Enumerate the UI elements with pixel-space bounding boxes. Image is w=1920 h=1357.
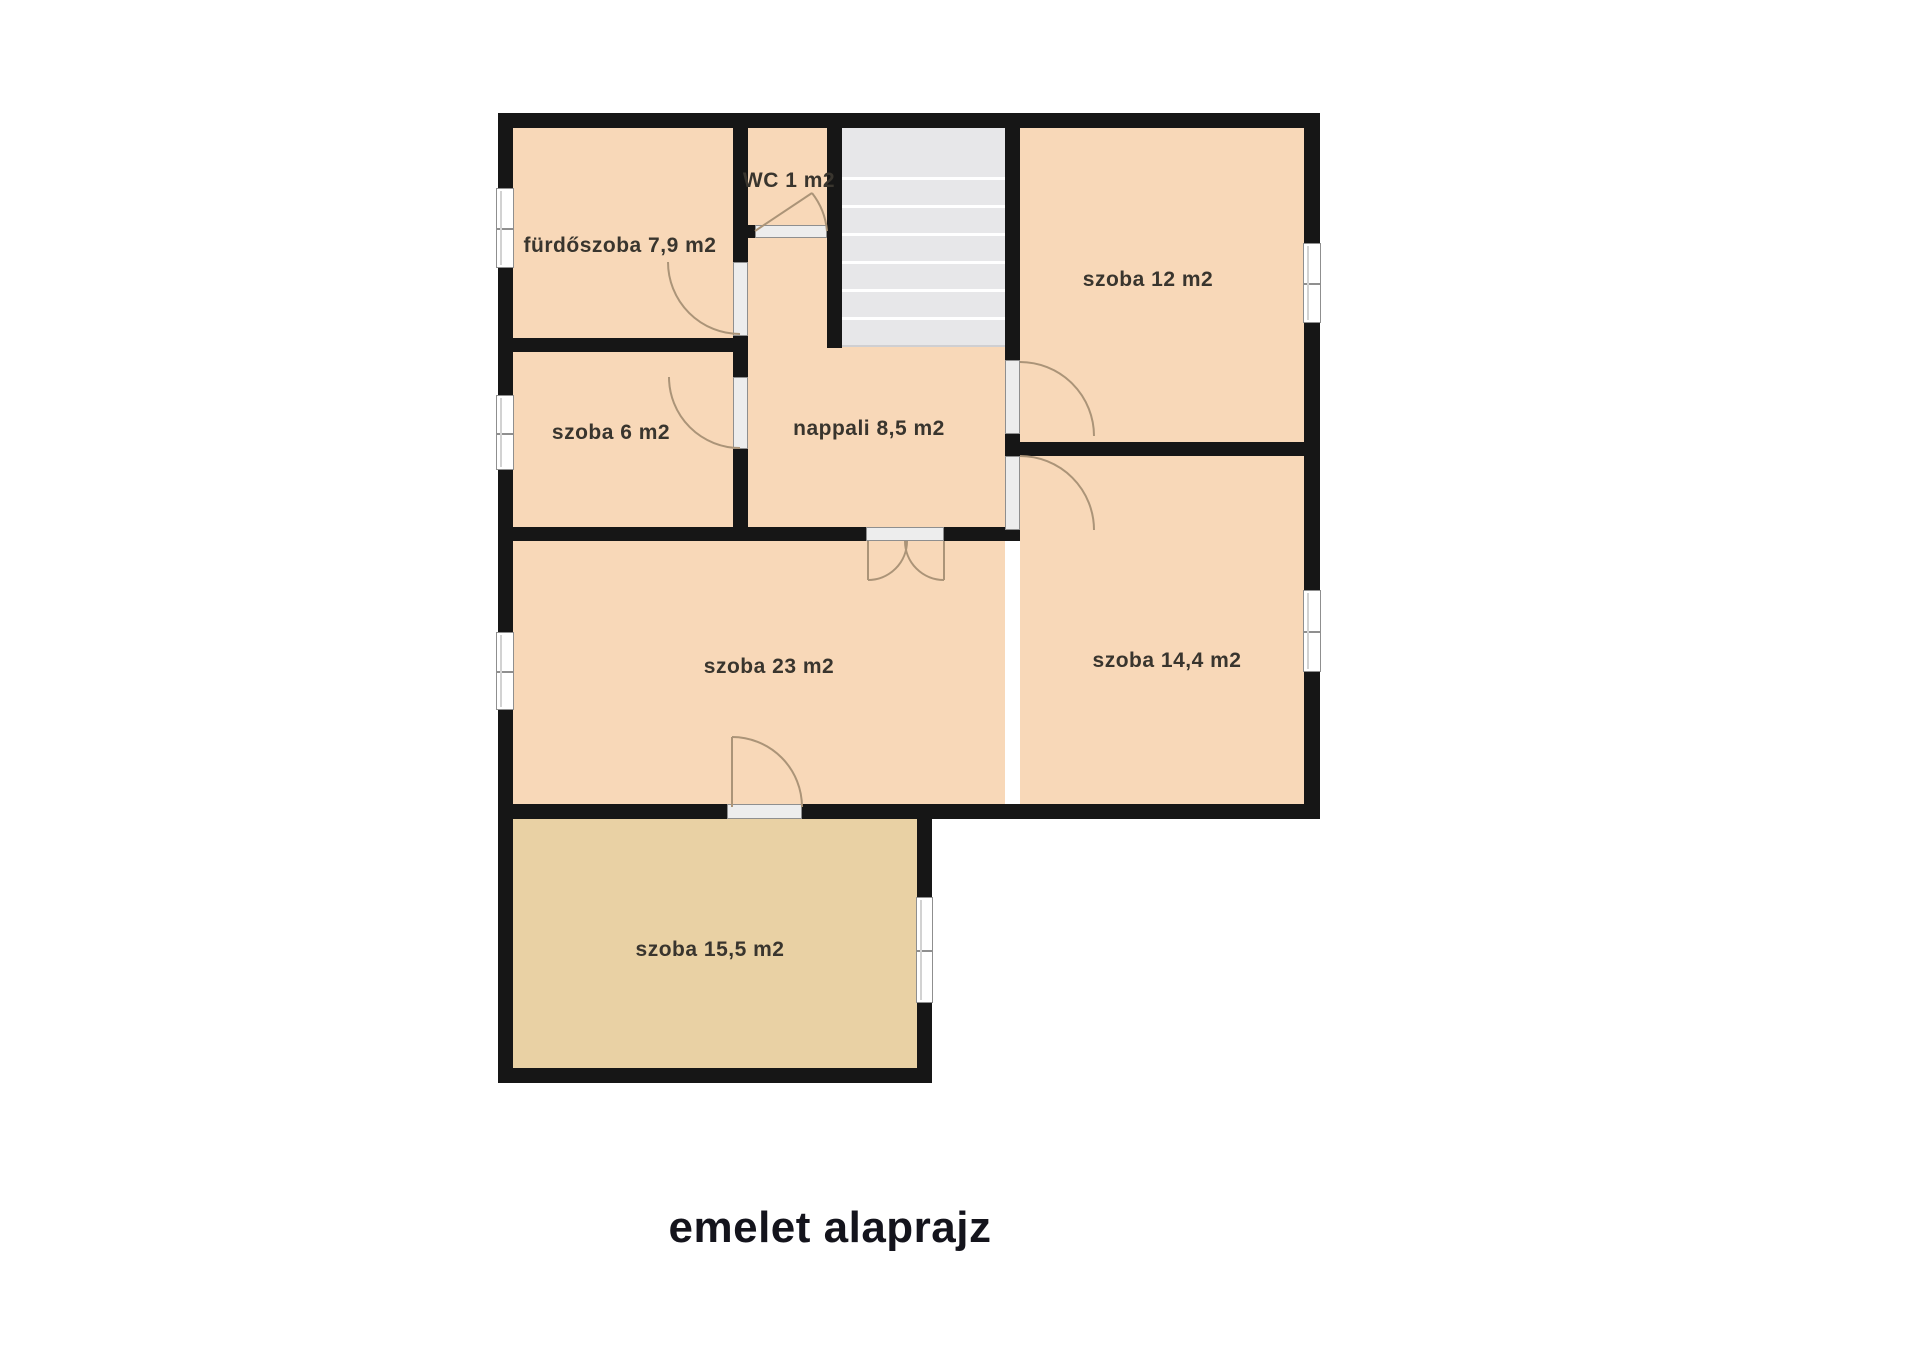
wall-divider-szoba12-144 xyxy=(1020,442,1304,456)
wall-stairs-right xyxy=(1005,113,1020,360)
label-furdoszoba: fürdőszoba 7,9 m2 xyxy=(524,234,717,258)
staircase xyxy=(842,128,1005,347)
stair-tread-line xyxy=(842,233,1005,236)
stair-tread-line xyxy=(842,289,1005,292)
stair-tread-line xyxy=(842,317,1005,320)
window-szoba12 xyxy=(1303,243,1321,323)
wall-bottom-main-left xyxy=(498,804,727,819)
door-szoba12 xyxy=(1005,360,1020,434)
door-double-szoba23 xyxy=(866,527,944,541)
wall-furdo-right-upper xyxy=(733,128,748,262)
window-furdoszoba xyxy=(496,188,514,268)
door-szoba155 xyxy=(727,804,802,819)
wall-furdo-bottom xyxy=(513,338,748,352)
door-szoba144 xyxy=(1005,456,1020,530)
door-wc xyxy=(755,225,827,238)
wall-right-outer xyxy=(1304,113,1320,819)
stair-tread-line xyxy=(842,177,1005,180)
stair-tread-line xyxy=(842,261,1005,264)
page-title: emelet alaprajz xyxy=(669,1203,992,1253)
hall-corridor xyxy=(748,238,828,345)
wall-stairs-left xyxy=(827,128,842,348)
label-nappali: nappali 8,5 m2 xyxy=(793,417,945,441)
wall-stub-between-doors xyxy=(1005,434,1020,456)
door-szoba6 xyxy=(733,377,748,449)
label-szoba144: szoba 14,4 m2 xyxy=(1093,649,1242,673)
label-szoba12: szoba 12 m2 xyxy=(1083,268,1213,292)
wall-szoba155-bottom xyxy=(498,1068,932,1083)
label-wc: WC 1 m2 xyxy=(743,169,835,193)
wall-top-outer xyxy=(498,113,1320,128)
room-furdoszoba xyxy=(513,128,733,338)
floor-plan-canvas: fürdőszoba 7,9 m2 WC 1 m2 szoba 12 m2 na… xyxy=(0,0,1920,1357)
door-furdoszoba xyxy=(733,262,748,336)
label-szoba23: szoba 23 m2 xyxy=(704,655,834,679)
stair-tread-line xyxy=(842,205,1005,208)
wall-bottom-main-right xyxy=(802,804,1320,819)
label-szoba155: szoba 15,5 m2 xyxy=(636,938,785,962)
window-szoba23 xyxy=(496,632,514,710)
window-szoba144 xyxy=(1303,590,1321,672)
room-szoba144 xyxy=(1020,456,1304,804)
wall-wc-jamb-left xyxy=(748,225,755,238)
wall-szoba23-top-left xyxy=(498,527,866,541)
label-szoba6: szoba 6 m2 xyxy=(552,421,670,445)
window-szoba6 xyxy=(496,395,514,470)
window-szoba155 xyxy=(916,897,933,1003)
